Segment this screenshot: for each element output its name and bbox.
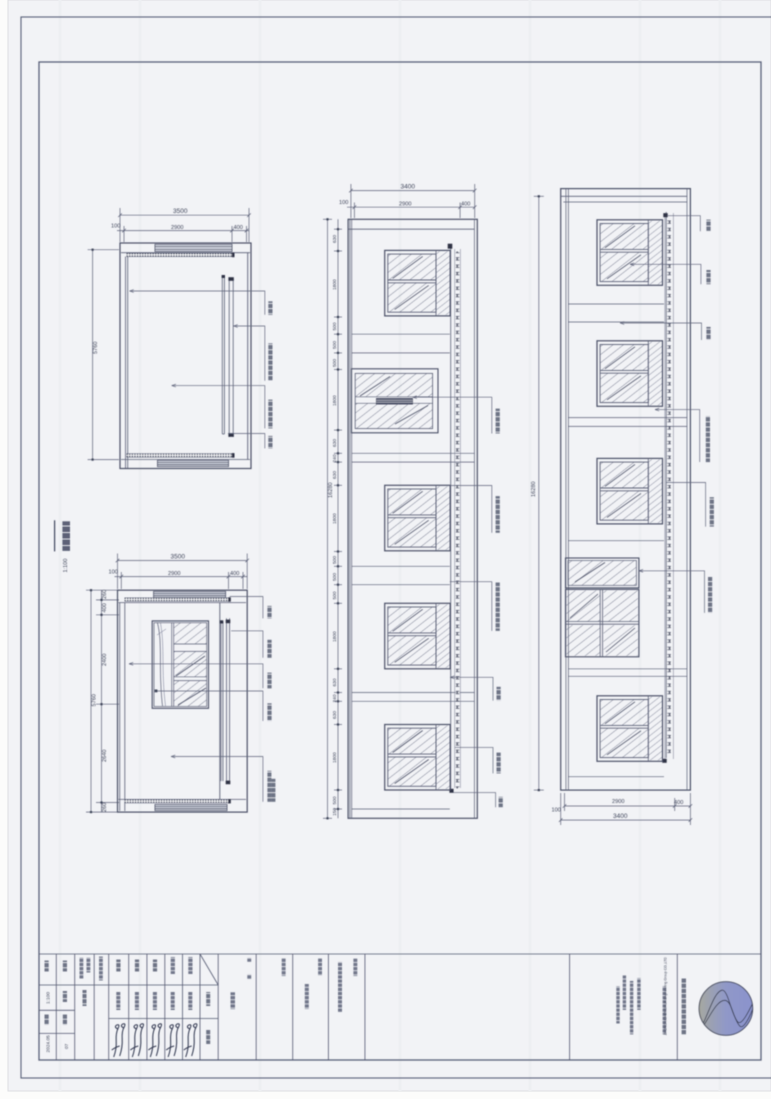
svg-text:2900: 2900: [612, 799, 624, 805]
svg-text:1800: 1800: [332, 631, 338, 642]
svg-text:400: 400: [102, 603, 108, 612]
svg-text:2400: 2400: [102, 654, 108, 666]
svg-text:400: 400: [674, 800, 683, 806]
svg-text:3400: 3400: [401, 184, 416, 191]
svg-text:2024.05: 2024.05: [46, 1035, 52, 1053]
svg-text:400: 400: [230, 571, 239, 577]
svg-text:1800: 1800: [332, 513, 338, 524]
svg-text:1:100: 1:100: [46, 992, 52, 1004]
svg-text:500: 500: [332, 556, 338, 564]
svg-text:500: 500: [332, 359, 338, 367]
svg-text:500: 500: [332, 573, 338, 581]
svg-text:5760: 5760: [93, 342, 99, 354]
svg-text:07: 07: [64, 1043, 70, 1049]
svg-text:240: 240: [332, 694, 338, 702]
svg-text:100: 100: [339, 200, 348, 206]
svg-text:150: 150: [332, 808, 338, 816]
svg-text:100: 100: [552, 808, 561, 814]
svg-text:400: 400: [234, 225, 243, 231]
svg-text:240: 240: [332, 454, 338, 462]
svg-text:260: 260: [102, 803, 108, 812]
svg-text:2900: 2900: [171, 225, 183, 231]
svg-text:500: 500: [332, 796, 338, 804]
svg-text:630: 630: [332, 235, 338, 243]
svg-text:100: 100: [109, 570, 118, 576]
svg-text:500: 500: [332, 341, 338, 349]
svg-text:5760: 5760: [91, 694, 97, 706]
svg-text:1800: 1800: [332, 279, 338, 290]
svg-text:16280: 16280: [328, 482, 334, 498]
svg-text:16280: 16280: [531, 481, 537, 497]
svg-text:260: 260: [102, 590, 108, 599]
svg-text:3500: 3500: [173, 208, 188, 215]
svg-text:500: 500: [332, 591, 338, 599]
svg-text:100: 100: [111, 224, 120, 230]
svg-text:630: 630: [332, 471, 338, 479]
svg-text:2900: 2900: [168, 571, 180, 577]
svg-text:2640: 2640: [102, 750, 108, 762]
svg-text:1:100: 1:100: [63, 559, 69, 573]
svg-text:2900: 2900: [399, 202, 411, 208]
svg-text:1800: 1800: [332, 752, 338, 763]
svg-text:3500: 3500: [171, 553, 186, 560]
svg-text:500: 500: [332, 322, 338, 330]
svg-text:630: 630: [332, 439, 338, 447]
svg-text:3400: 3400: [613, 813, 628, 820]
svg-text:630: 630: [332, 711, 338, 719]
svg-text:630: 630: [332, 678, 338, 686]
svg-text:1800: 1800: [332, 395, 338, 406]
svg-text:400: 400: [461, 202, 470, 208]
svg-text:ZHONGXICHENGHUA Engineering Gr: ZHONGXICHENGHUA Engineering Group CO.,LT…: [664, 957, 668, 1036]
